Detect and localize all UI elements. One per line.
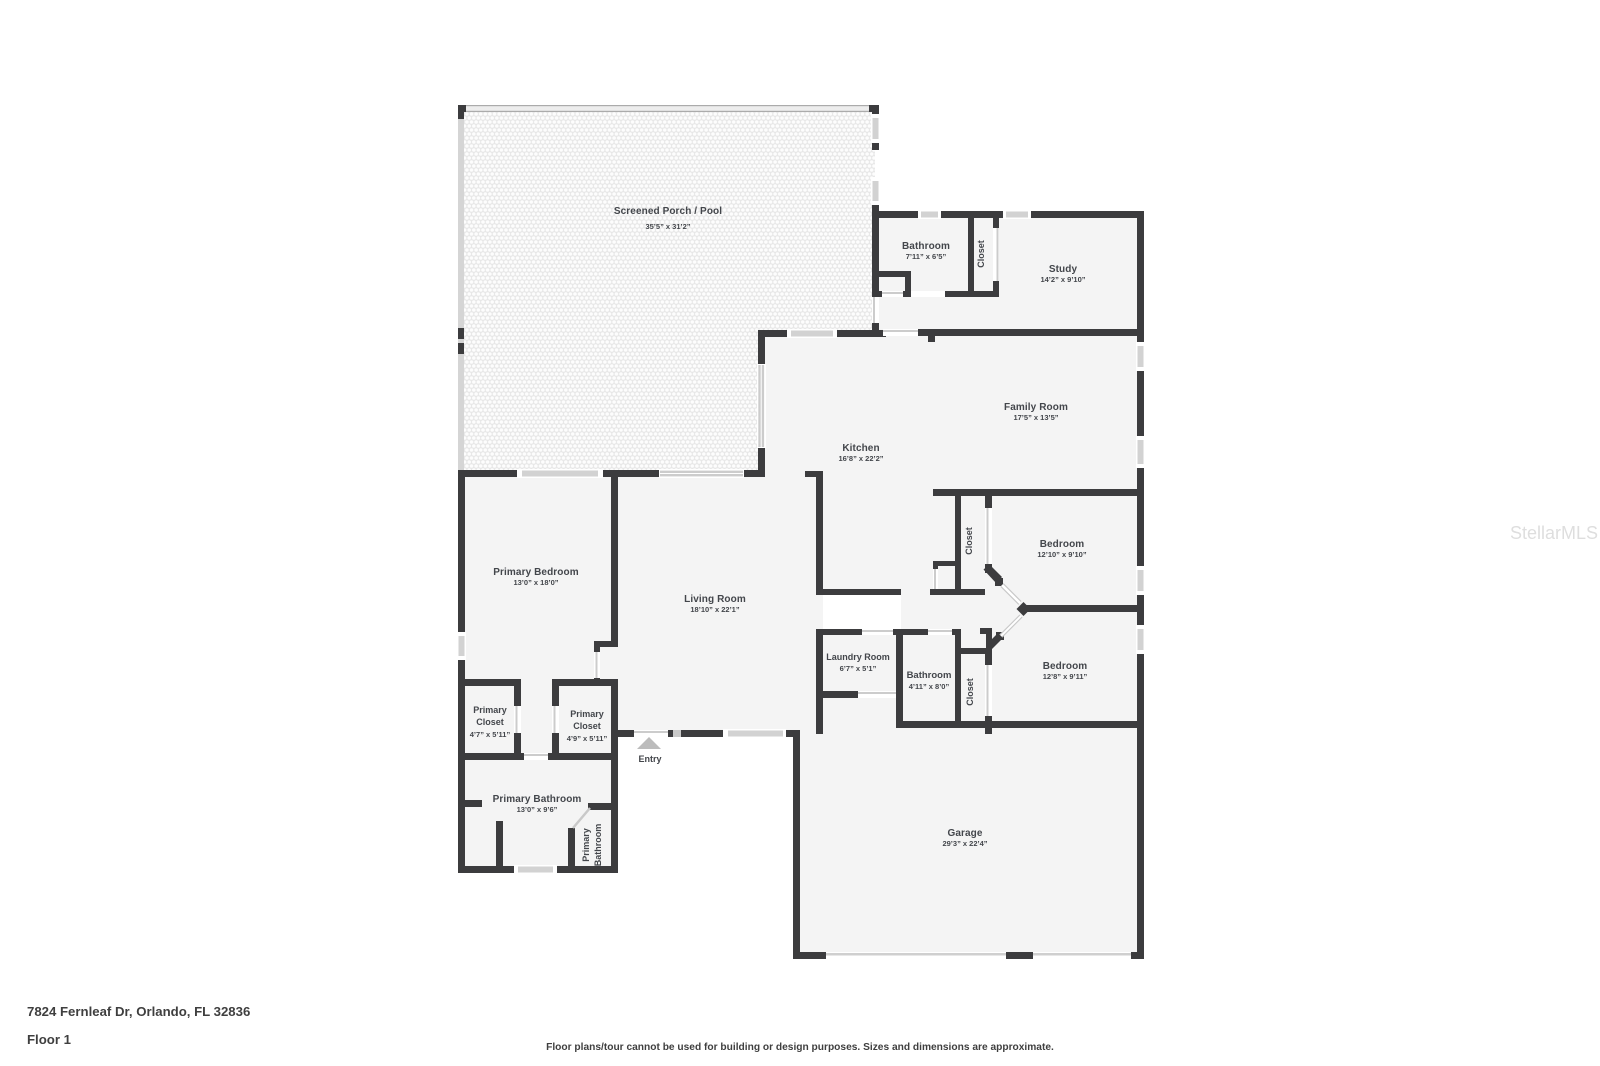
svg-text:14’2” x 9’10”: 14’2” x 9’10” [1040,275,1085,284]
svg-text:Floor plans/tour cannot be use: Floor plans/tour cannot be used for buil… [546,1042,1054,1053]
svg-text:StellarMLS: StellarMLS [1510,523,1598,543]
svg-text:7824 Fernleaf Dr, Orlando, FL: 7824 Fernleaf Dr, Orlando, FL 32836 [27,1004,250,1019]
svg-text:Living Room: Living Room [684,594,746,605]
svg-text:6’7” x 5’1”: 6’7” x 5’1” [840,664,877,673]
svg-text:Primary Bathroom: Primary Bathroom [493,794,582,805]
svg-text:Closet: Closet [965,678,975,706]
svg-text:4’7” x 5’11”: 4’7” x 5’11” [470,730,511,739]
svg-text:Laundry Room: Laundry Room [826,652,890,662]
svg-text:Study: Study [1049,264,1078,275]
svg-text:Closet: Closet [976,240,986,268]
svg-text:Closet: Closet [476,717,504,727]
svg-text:13’0” x 9’6”: 13’0” x 9’6” [517,805,558,814]
svg-text:4’11” x 8’0”: 4’11” x 8’0” [909,682,950,691]
svg-text:29’3” x 22’4”: 29’3” x 22’4” [942,839,987,848]
svg-text:13’0” x 18’0”: 13’0” x 18’0” [513,578,558,587]
svg-text:16’8” x 22’2”: 16’8” x 22’2” [838,454,883,463]
svg-text:Family Room: Family Room [1004,402,1068,413]
svg-text:Bedroom: Bedroom [1043,661,1088,672]
svg-text:4’9” x 5’11”: 4’9” x 5’11” [567,734,608,743]
svg-text:7’11” x 6’5”: 7’11” x 6’5” [906,252,947,261]
svg-text:Floor 1: Floor 1 [27,1032,71,1047]
svg-text:Bedroom: Bedroom [1040,539,1085,550]
svg-text:Closet: Closet [573,721,601,731]
svg-text:35’5” x 31’2”: 35’5” x 31’2” [645,222,690,231]
svg-text:Primary Bedroom: Primary Bedroom [493,567,578,578]
svg-text:Entry: Entry [638,754,661,764]
svg-text:Screened Porch / Pool: Screened Porch / Pool [614,206,722,217]
svg-text:Primary: Primary [581,828,591,862]
svg-text:12’8” x 9’11”: 12’8” x 9’11” [1043,672,1088,681]
svg-text:Bathroom: Bathroom [907,670,952,681]
svg-text:17’5” x 13’5”: 17’5” x 13’5” [1013,413,1058,422]
svg-text:Garage: Garage [947,828,982,839]
svg-text:Bathroom: Bathroom [902,241,950,252]
svg-text:Primary: Primary [473,705,507,715]
svg-text:Kitchen: Kitchen [842,443,879,454]
svg-text:Bathroom: Bathroom [593,824,603,867]
svg-text:Primary: Primary [570,709,604,719]
svg-text:18’10” x 22’1”: 18’10” x 22’1” [690,605,739,614]
svg-text:Closet: Closet [964,527,974,555]
svg-text:12’10” x 9’10”: 12’10” x 9’10” [1037,550,1086,559]
